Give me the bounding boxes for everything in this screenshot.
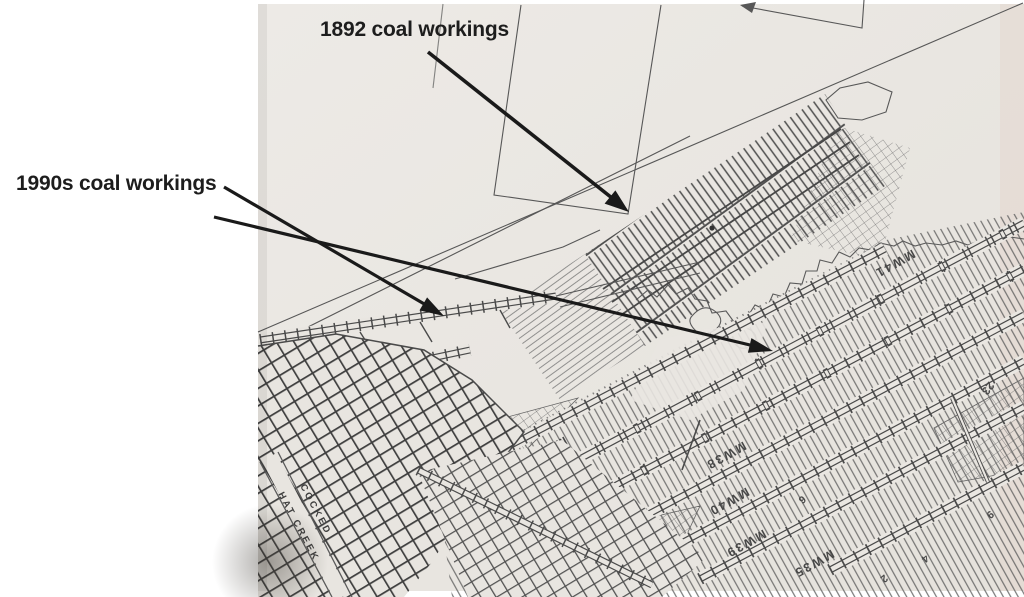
annotation-1892-label: 1892 coal workings: [320, 18, 509, 42]
annotation-1990s-label: 1990s coal workings: [16, 172, 216, 196]
mine-plan-map: MW43 MW41 MW38 MW40 MW39 MW35 23 6 4 2 9: [0, 0, 1024, 597]
page-canvas: MW43 MW41 MW38 MW40 MW39 MW35 23 6 4 2 9: [0, 0, 1024, 597]
